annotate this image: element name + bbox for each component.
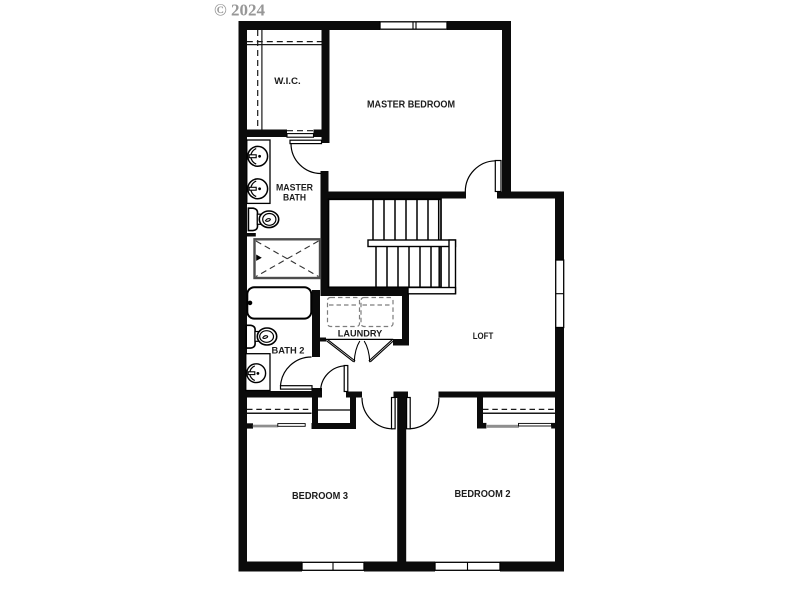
svg-text:BATH: BATH (283, 191, 306, 202)
svg-text:LAUNDRY: LAUNDRY (338, 328, 383, 339)
svg-text:BEDROOM 2: BEDROOM 2 (455, 489, 511, 500)
svg-text:LOFT: LOFT (473, 331, 494, 342)
svg-text:MASTER BEDROOM: MASTER BEDROOM (367, 100, 455, 111)
svg-text:BEDROOM 3: BEDROOM 3 (292, 491, 348, 502)
svg-text:W.I.C.: W.I.C. (274, 76, 301, 86)
svg-text:BATH 2: BATH 2 (272, 345, 305, 356)
svg-text:© 2024: © 2024 (214, 1, 265, 20)
